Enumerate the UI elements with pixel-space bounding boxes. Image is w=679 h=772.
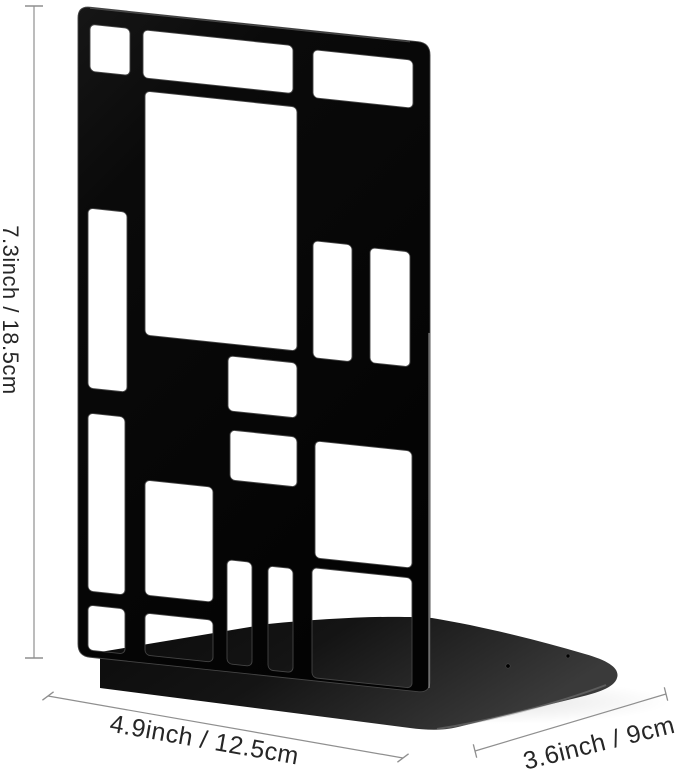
height-label: 7.3inch / 18.5cm — [0, 225, 23, 394]
screw-hole — [506, 664, 510, 668]
product-photo: 7.3inch / 18.5cm 4.9in — [0, 0, 679, 772]
bookend-product-image: 7.3inch / 18.5cm 4.9in — [0, 0, 679, 772]
screw-hole — [566, 654, 570, 658]
